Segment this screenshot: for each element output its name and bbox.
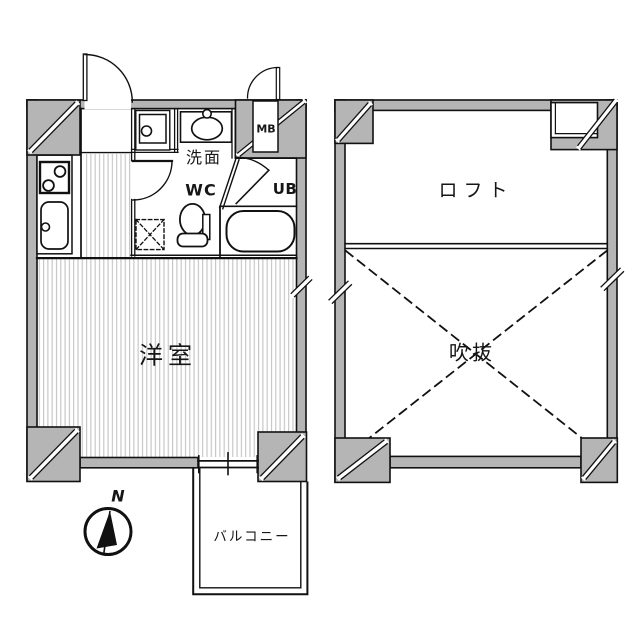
room-label-wc: WC [185,181,216,200]
meter-box-door-icon [248,68,280,100]
wall-pier-top-left [27,100,80,155]
kitchen-sink-icon [41,202,68,249]
room-label-loft: ロフト [438,176,513,203]
compass-icon [85,509,131,556]
wall-pier-bottom-right [581,438,617,482]
floor-plan-canvas [0,0,640,640]
stove-icon [40,162,69,193]
loft-floor-plan [329,99,624,482]
room-label-void: 吹抜 [449,337,495,366]
wall-pier-bottom-left [335,438,390,482]
entrance-door-icon [83,54,132,102]
wall-pier-top-right [551,99,617,149]
toilet-icon [178,204,210,247]
washing-machine-icon [136,111,170,151]
compass-north-label: N [111,487,124,506]
room-label-balcony: バルコニー [213,525,290,545]
wall-pier-top-left [335,100,373,143]
bathtub-icon [227,211,295,252]
room-label-meter-box: MB [256,123,275,136]
washroom-door-icon [133,161,172,200]
loft-divider-line [345,244,607,249]
outer-walls [335,100,617,482]
floor-hatch [37,154,297,457]
floorplan-page: 洋室 洗面 WC UB MB バルコニー ロフト 吹抜 N [0,0,640,640]
entrance-opening [85,99,132,110]
wall-pier-bottom-left [27,427,80,482]
wall-pier-bottom-right [258,432,307,482]
room-label-washroom: 洗面 [186,144,222,168]
washbasin-icon [181,110,232,143]
bath-door-icon [236,157,269,203]
kitchen-counter [37,155,72,254]
room-label-unit-bath: UB [273,180,298,198]
room-label-youshitsu: 洋室 [139,336,197,371]
laundry-pan-icon [136,220,164,250]
